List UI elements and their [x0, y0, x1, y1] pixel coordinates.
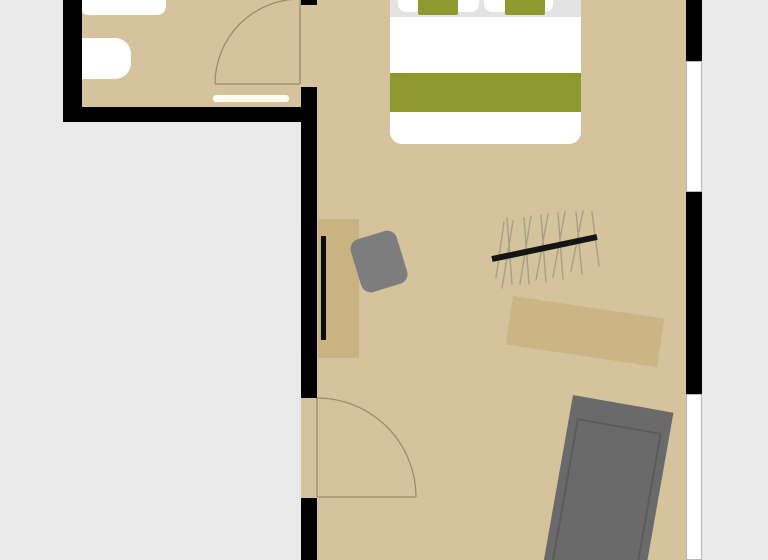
- wall-right-top: [686, 0, 702, 61]
- double-bed: [390, 0, 581, 144]
- pillow-accent-left: [418, 0, 458, 15]
- lounger-cushion-outline: [548, 418, 662, 560]
- wall-bathroom-left: [63, 0, 82, 122]
- pillow-accent-right: [505, 0, 545, 15]
- window-upper: [686, 61, 702, 192]
- wall-bathroom-bottom: [63, 107, 301, 122]
- bath-mat: [213, 95, 289, 102]
- toilet: [82, 38, 131, 79]
- blanket-stripe: [390, 73, 581, 112]
- wall-middle-bottom: [301, 498, 317, 560]
- wall-middle-main: [301, 87, 317, 398]
- floor-plan-canvas: [0, 0, 768, 560]
- wall-middle-top-stub: [301, 0, 317, 5]
- desk-front-edge: [321, 236, 326, 340]
- sink-counter: [82, 0, 166, 15]
- window-lower: [686, 394, 702, 560]
- wall-right-middle: [686, 192, 702, 394]
